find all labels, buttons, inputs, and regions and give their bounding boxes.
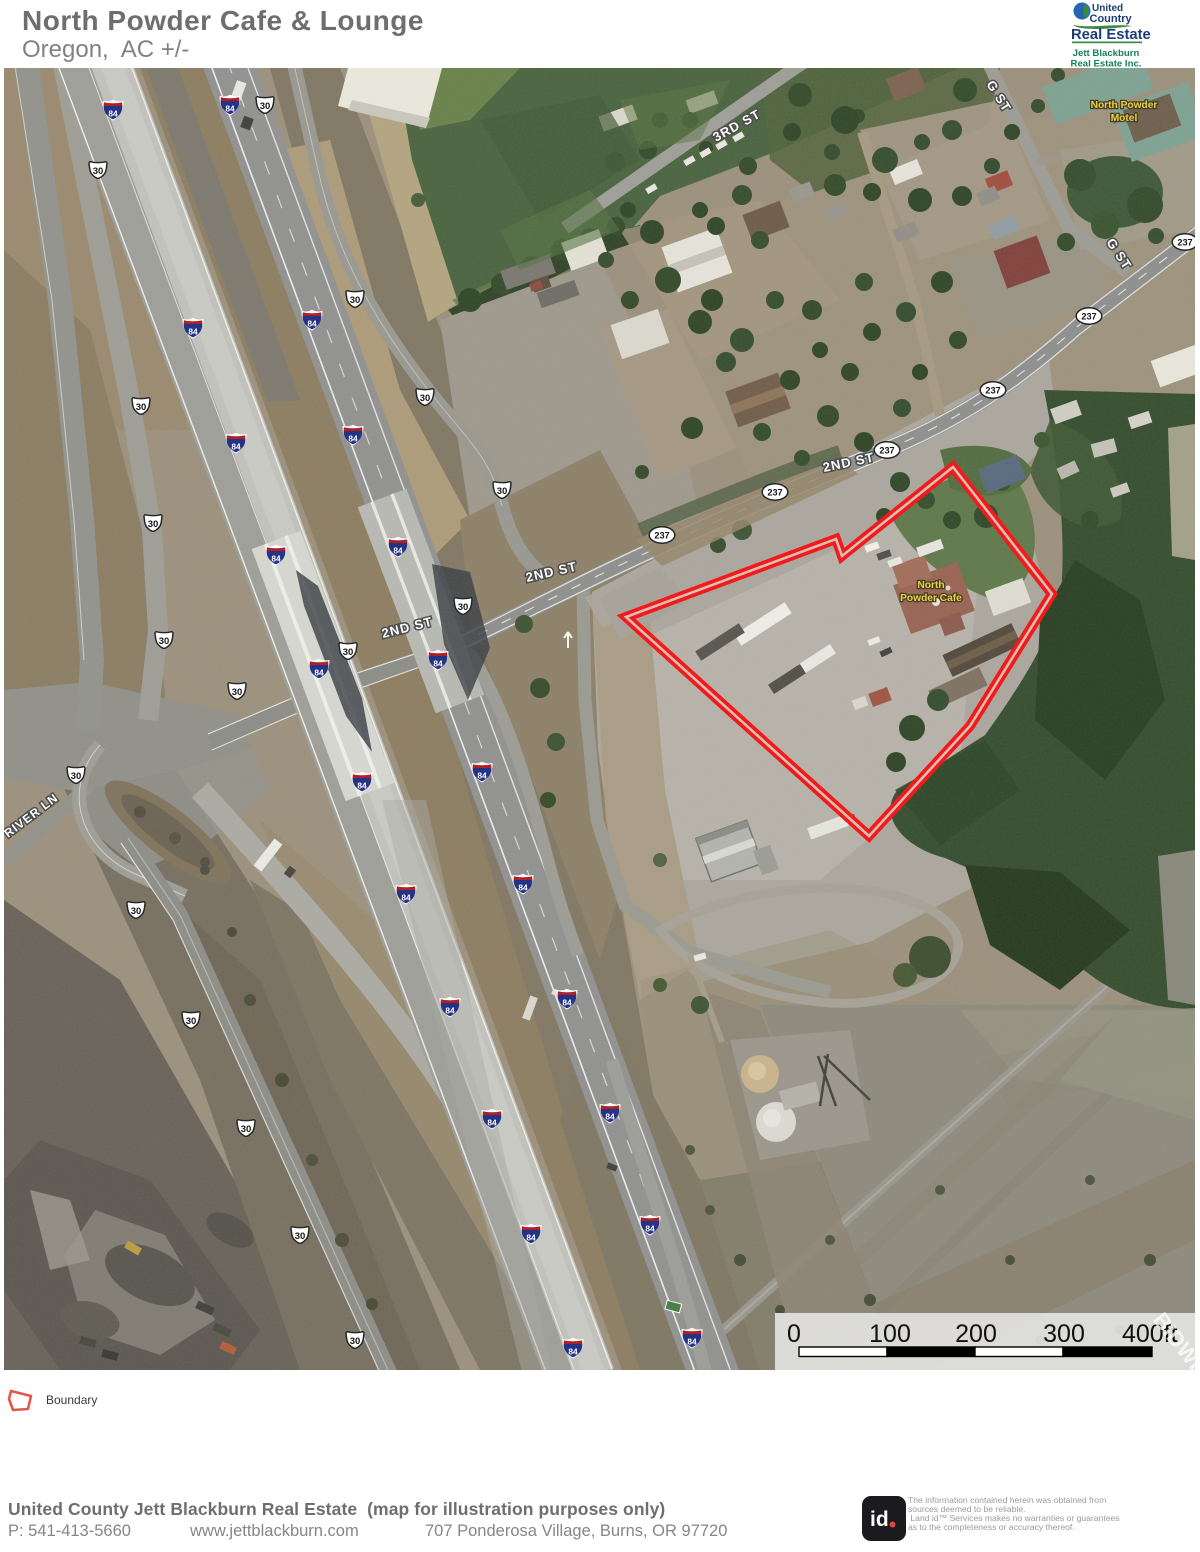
svg-text:Real Estate: Real Estate [1071, 27, 1151, 43]
svg-text:Country: Country [1090, 13, 1133, 25]
svg-text:Powder Cafe: Powder Cafe [900, 593, 962, 604]
svg-text:Real Estate Inc.: Real Estate Inc. [1071, 59, 1142, 69]
svg-text:300: 300 [1043, 1320, 1085, 1348]
svg-text:100: 100 [869, 1320, 911, 1348]
svg-text:id: id [870, 1508, 889, 1531]
svg-text:200: 200 [955, 1320, 997, 1348]
svg-text:Jett Blackburn: Jett Blackburn [1073, 48, 1140, 59]
svg-text:North: North [917, 580, 944, 591]
svg-text:North Powder: North Powder [1091, 100, 1158, 111]
svg-text:0: 0 [787, 1320, 801, 1348]
svg-text:Motel: Motel [1111, 113, 1138, 124]
